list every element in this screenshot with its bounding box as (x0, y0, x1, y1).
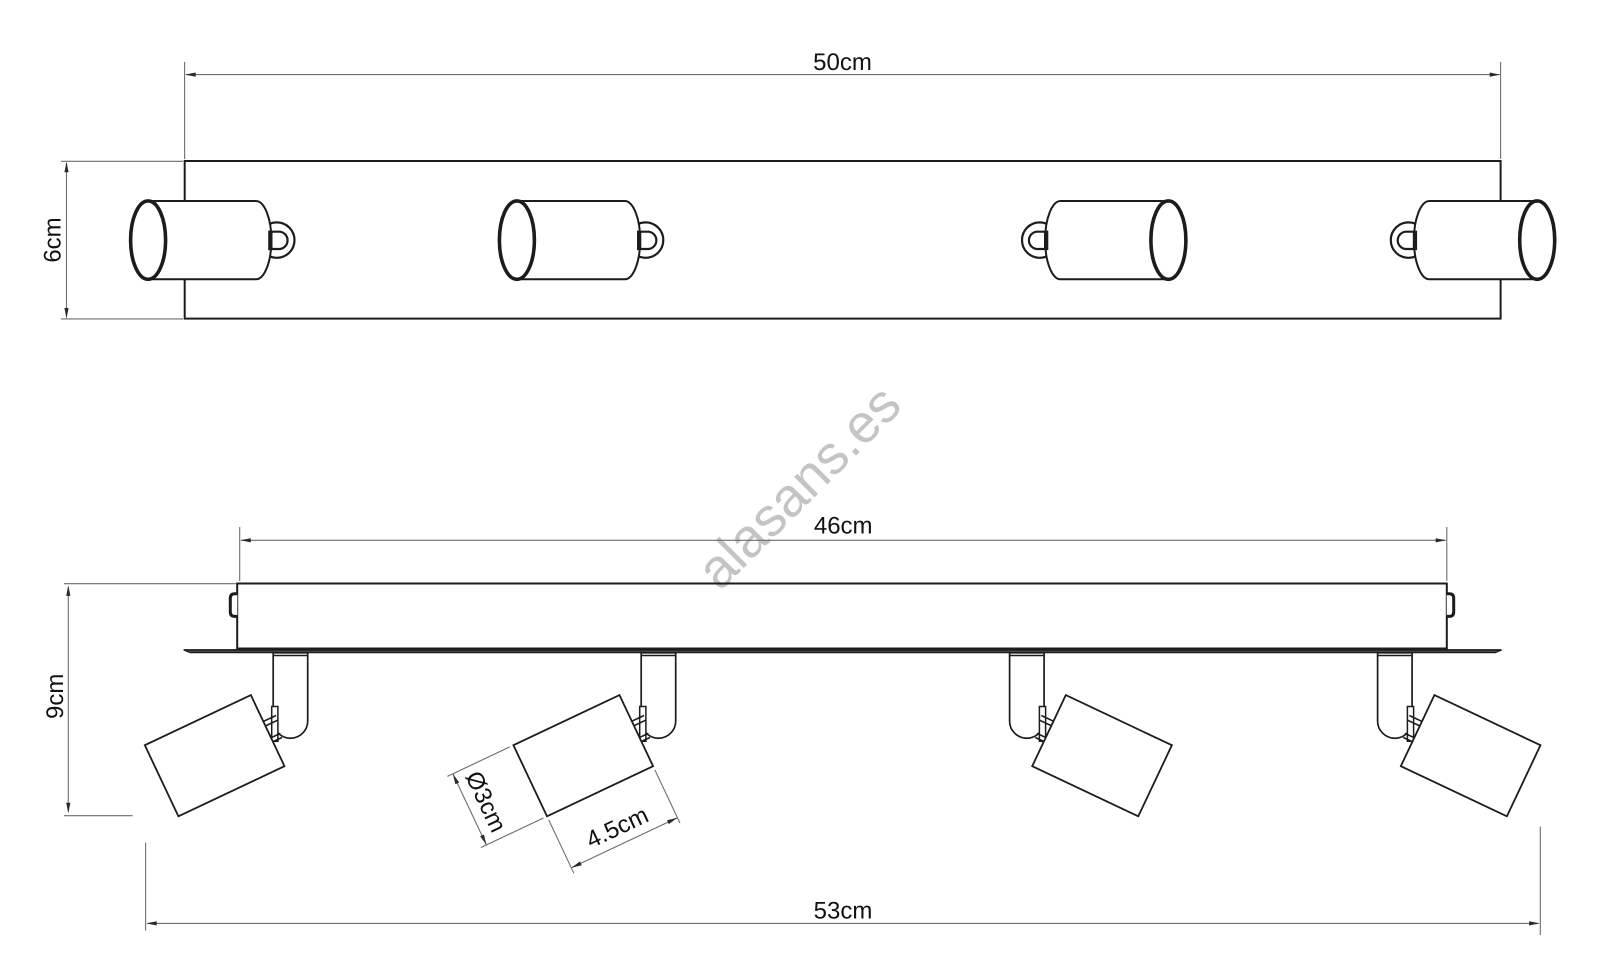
svg-text:6cm: 6cm (40, 217, 67, 262)
svg-text:46cm: 46cm (814, 513, 873, 540)
svg-text:50cm: 50cm (813, 49, 872, 76)
svg-text:9cm: 9cm (42, 674, 69, 719)
svg-text:53cm: 53cm (814, 898, 873, 925)
